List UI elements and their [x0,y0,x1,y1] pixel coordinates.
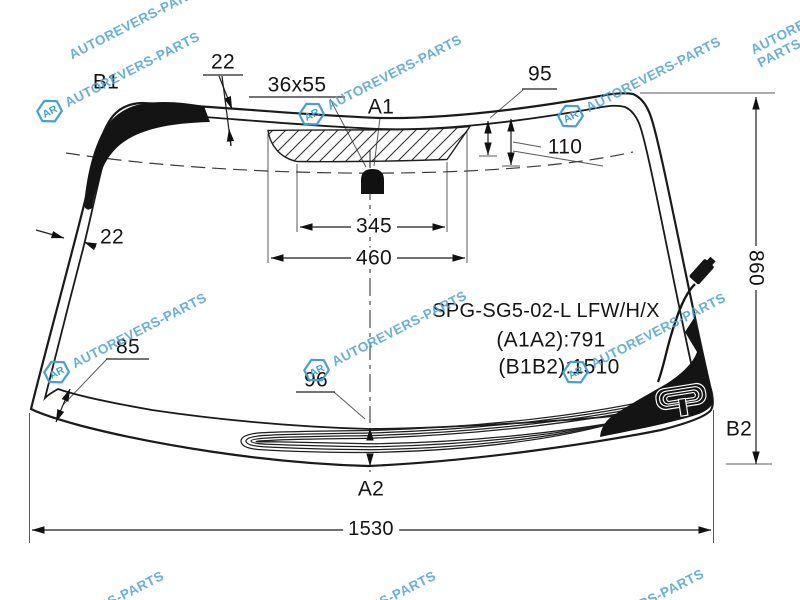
dim-top-edge-band: 22 [211,52,235,73]
distance-a1a2: (A1A2):791 [496,330,605,351]
dim-shade-span: 460 [351,248,397,269]
dim-mirror-base: 36x55 [268,75,327,96]
label-a2: A2 [358,479,384,500]
shade-band [268,127,470,162]
wire-connector [689,255,718,285]
dim-heater-height: 96 [304,370,328,391]
dim-shade-right: 110 [548,137,582,158]
distance-b1b2: (B1B2):1510 [498,357,619,378]
dim-left-edge-band: 22 [100,227,124,248]
dim-glass-height: 860 [746,246,767,290]
dim-shade-left: 95 [528,64,552,85]
windshield-diagram: B1 A1 B2 A2 22 36x55 95 110 345 460 22 8… [0,0,800,600]
label-a1: A1 [368,97,394,118]
windshield-drawing [0,0,800,600]
label-b1: B1 [93,72,119,93]
dim-bottom-left-band: 85 [116,337,140,358]
part-number: SPG-SG5-02-L LFW/H/X [432,301,660,321]
label-b2: B2 [726,419,752,440]
dim-mirror-span: 345 [351,216,397,237]
mirror-mount [361,169,384,194]
frit-band-top-left [84,102,210,210]
dim-glass-width: 1530 [343,519,399,539]
